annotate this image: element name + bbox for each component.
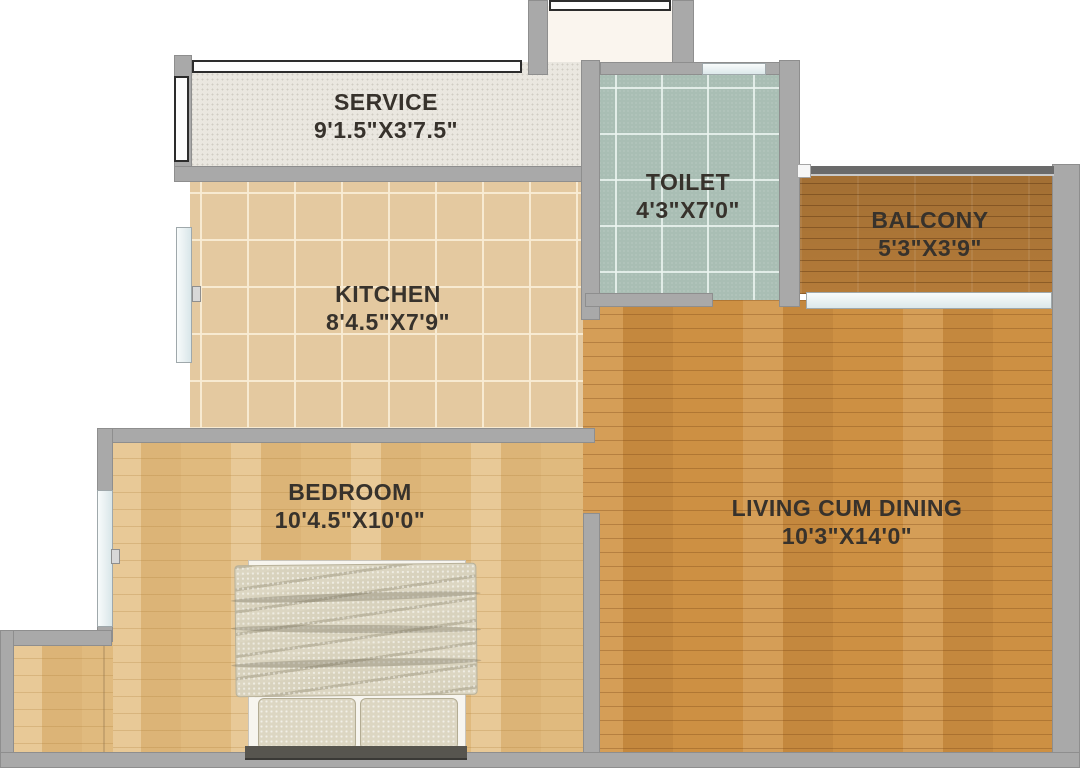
- room-name: SERVICE: [236, 88, 536, 116]
- bed-pillow-left: [258, 698, 356, 750]
- bed-blanket: [234, 563, 477, 698]
- window-latch: [111, 549, 120, 564]
- room-label-balcony: BALCONY 5'3"X3'9": [780, 206, 1080, 262]
- room-dimensions: 8'4.5"X7'9": [238, 308, 538, 336]
- bedroom-alcove-floor: [12, 641, 113, 754]
- room-dimensions: 10'4.5"X10'0": [200, 506, 500, 534]
- room-name: BEDROOM: [200, 478, 500, 506]
- wall: [174, 166, 600, 182]
- bed: [245, 556, 467, 758]
- room-dimensions: 9'1.5"X3'7.5": [236, 116, 536, 144]
- room-label-service: SERVICE 9'1.5"X3'7.5": [236, 88, 536, 144]
- wall: [97, 428, 595, 443]
- shaft-floor: [546, 6, 674, 68]
- room-dimensions: 10'3"X14'0": [647, 522, 1047, 550]
- room-name: TOILET: [538, 168, 838, 196]
- wall: [528, 0, 548, 75]
- room-label-bedroom: BEDROOM 10'4.5"X10'0": [200, 478, 500, 534]
- window-kitchen-left: [176, 227, 192, 363]
- balcony-railing: [802, 166, 1054, 176]
- room-name: BALCONY: [780, 206, 1080, 234]
- wall: [0, 630, 112, 646]
- bed-headboard: [245, 746, 467, 760]
- bed-pillow-right: [360, 698, 458, 750]
- room-name: KITCHEN: [238, 280, 538, 308]
- window-shaft-top: [549, 0, 671, 11]
- window-living-balcony: [806, 292, 1052, 309]
- window-service-left: [174, 76, 189, 162]
- floor-plan: SERVICE 9'1.5"X3'7.5" TOILET 4'3"X7'0" B…: [0, 0, 1080, 768]
- window-latch: [192, 286, 201, 302]
- window-service-top: [192, 60, 522, 73]
- blanket-fold: [231, 656, 481, 669]
- room-dimensions: 5'3"X3'9": [780, 234, 1080, 262]
- wall: [583, 513, 600, 753]
- window-toilet-top: [702, 63, 766, 75]
- room-label-kitchen: KITCHEN 8'4.5"X7'9": [238, 280, 538, 336]
- room-name: LIVING CUM DINING: [647, 494, 1047, 522]
- wall: [0, 752, 1080, 768]
- floor-seam: [103, 645, 105, 753]
- wall: [0, 630, 14, 756]
- blanket-fold: [231, 589, 481, 605]
- room-label-living: LIVING CUM DINING 10'3"X14'0": [647, 494, 1047, 550]
- blanket-fold: [231, 625, 481, 634]
- wall: [585, 293, 713, 307]
